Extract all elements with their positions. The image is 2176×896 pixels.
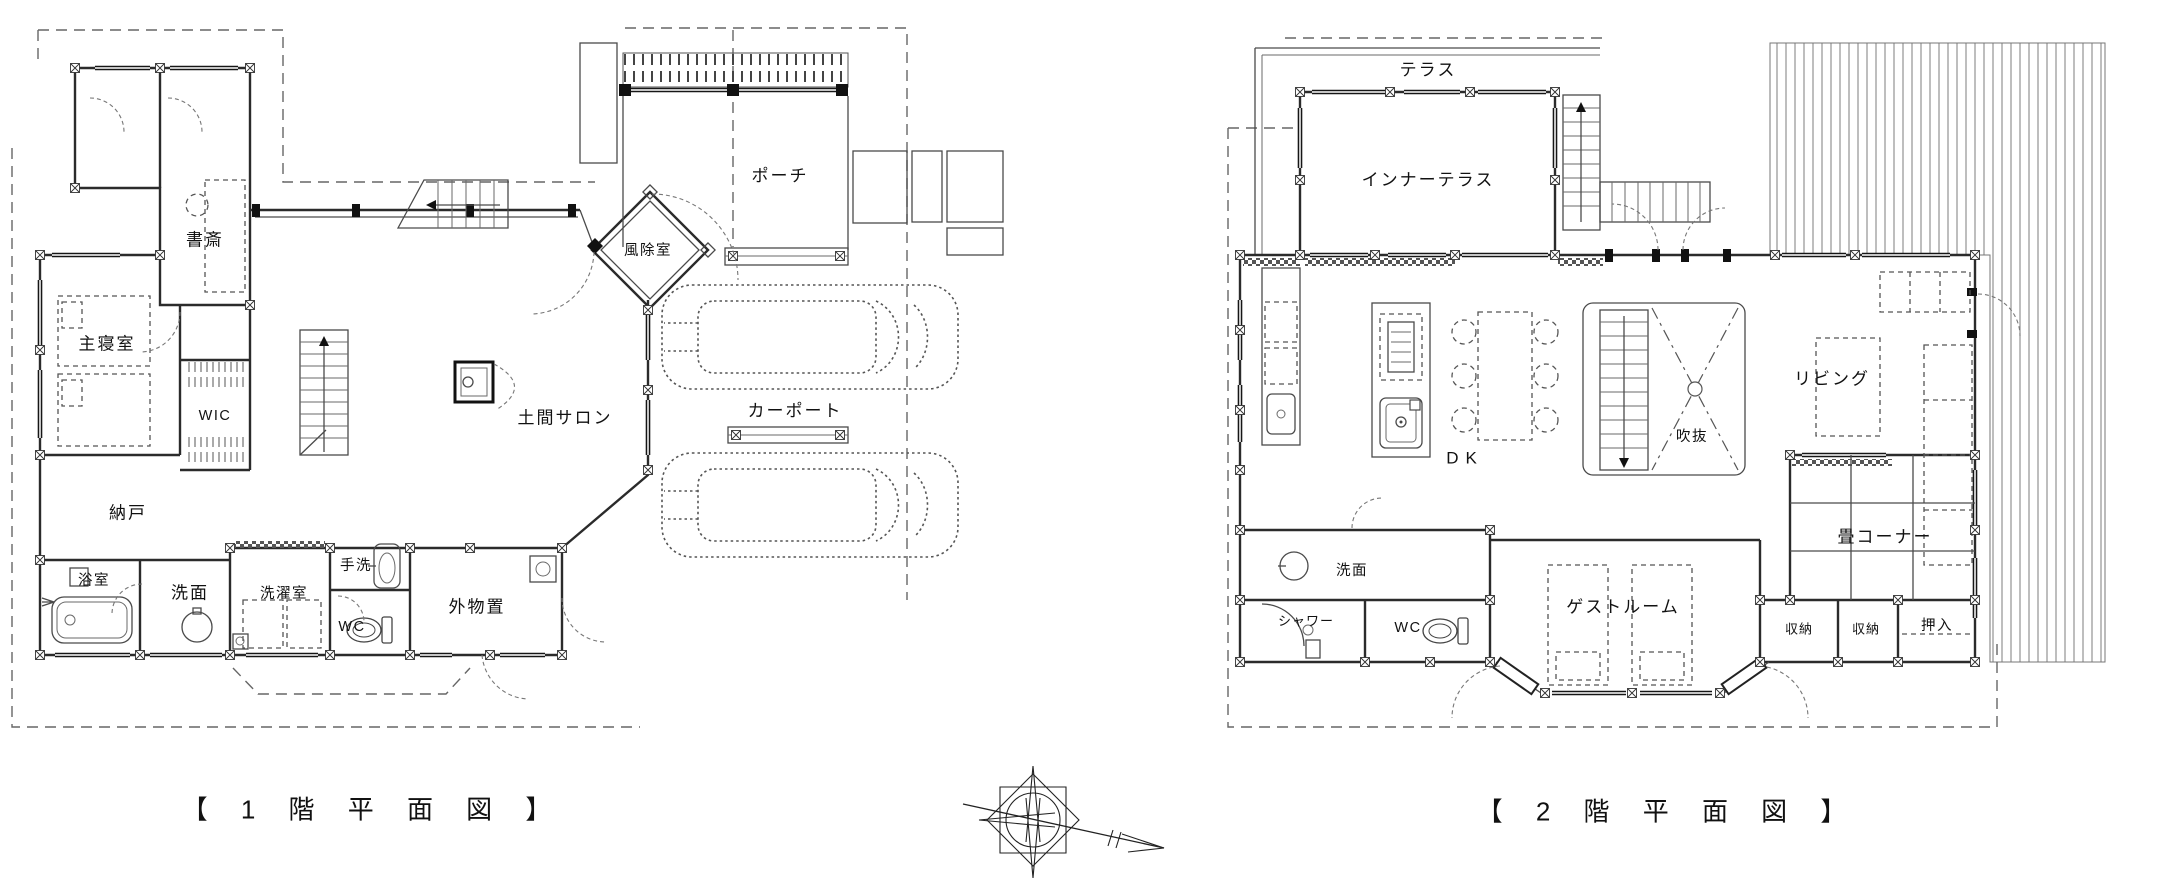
wood-stove-icon	[455, 362, 515, 410]
car-icon	[662, 285, 958, 389]
room-label-laundry: 洗濯室	[260, 587, 308, 602]
room-label-wc-1f: WC	[338, 620, 365, 635]
room-label-dk: DK	[1446, 450, 1484, 467]
room-label-shower: シャワー	[1278, 615, 1334, 628]
room-label-void: 吹抜	[1676, 430, 1708, 445]
room-label-washroom-1f: 洗面	[171, 585, 209, 602]
floor1-plan	[12, 28, 1003, 727]
carport-structure	[662, 285, 958, 557]
kitchen-island	[1372, 303, 1430, 457]
room-label-windbreak: 風除室	[624, 244, 672, 259]
room-label-bathroom: 浴室	[78, 574, 110, 589]
floorplan-drawing	[0, 0, 2176, 896]
car-icon	[662, 453, 958, 557]
caption-floor1: 【 1 階 平 面 図 】	[182, 790, 565, 827]
room-label-washroom-2f: 洗面	[1336, 564, 1368, 579]
room-label-porch: ポーチ	[752, 168, 809, 185]
exterior-steps	[853, 151, 1003, 255]
dining-table	[1452, 312, 1558, 440]
floor2-plan	[1228, 38, 2105, 727]
room-label-outdoor-storage: 外物置	[449, 599, 506, 616]
room-label-closet1: 収納	[1785, 623, 1813, 636]
room-label-closet2: 収納	[1852, 623, 1880, 636]
caption-floor2: 【 2 階 平 面 図 】	[1477, 792, 1860, 829]
room-label-master-bedroom: 主寝室	[79, 336, 136, 353]
room-label-wic: WIC	[199, 409, 232, 424]
stair-1f	[300, 330, 348, 455]
room-label-inner-terrace: インナーテラス	[1362, 172, 1495, 189]
kitchen-counter	[1262, 268, 1300, 445]
stair-entry-exterior	[398, 180, 508, 228]
room-label-storeroom: 納戸	[109, 505, 147, 522]
stair-void-2f	[1583, 303, 1745, 475]
lower-roof-hatch	[1770, 43, 2105, 662]
fixtures-1f	[42, 180, 556, 649]
room-label-terrace: テラス	[1400, 62, 1457, 79]
room-label-study: 書斎	[186, 232, 224, 249]
room-label-doma-salon: 土間サロン	[518, 410, 613, 427]
compass-rose-icon	[963, 766, 1164, 878]
living-furniture	[1816, 272, 1972, 565]
room-label-wc-2f: WC	[1394, 621, 1421, 636]
room-label-carport: カーポート	[748, 403, 843, 420]
terrace-structure	[1255, 48, 1710, 255]
floor-plan-sheet: 書斎 主寝室 WIC 納戸 浴室 洗面 洗濯室 手洗 WC 外物置 土間サロン …	[0, 0, 2176, 896]
room-label-futon-closet: 押入	[1921, 619, 1953, 634]
room-label-hand-basin: 手洗	[340, 559, 372, 574]
room-label-tatami-corner: 畳コーナー	[1838, 529, 1933, 546]
room-label-guest-room: ゲストルーム	[1566, 599, 1680, 616]
toilet-icon	[1423, 618, 1468, 644]
room-label-living: リビング	[1794, 371, 1870, 388]
